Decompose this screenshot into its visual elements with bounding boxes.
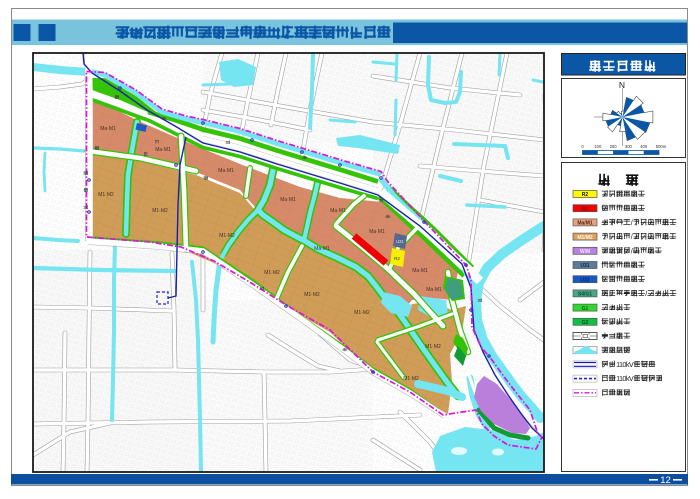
svg-text:G1: G1 [582,306,589,312]
svg-text:M1·M2: M1·M2 [219,233,235,239]
svg-text:Ma·M1: Ma·M1 [155,147,171,153]
svg-text:M1·M2: M1·M2 [403,376,419,382]
svg-text:300: 300 [625,144,633,149]
svg-text:R2: R2 [582,192,589,198]
svg-text:M1·M2: M1·M2 [304,292,320,298]
svg-text:110kV: 110kV [616,374,634,383]
svg-text:Ma·M1: Ma·M1 [426,287,442,293]
svg-text:U31: U31 [396,239,404,244]
svg-text:Ma·M1: Ma·M1 [369,229,385,235]
svg-text:110kV: 110kV [616,360,634,369]
svg-text:U31: U31 [580,263,589,269]
svg-text:Ma/M1: Ma/M1 [577,221,593,227]
svg-text:S4/G1: S4/G1 [578,292,592,298]
svg-text:U32: U32 [580,277,589,283]
svg-text:M1/M2: M1/M2 [577,235,593,241]
svg-text:M1·M2: M1·M2 [264,270,280,276]
svg-text:G2: G2 [582,320,589,326]
svg-text:400: 400 [640,144,648,149]
svg-text:R2: R2 [394,256,400,261]
svg-text:Ma·M1: Ma·M1 [218,168,234,174]
svg-text:200: 200 [610,144,618,149]
svg-text:M1·M2: M1·M2 [98,192,114,198]
svg-text:Ma·M1: Ma·M1 [330,208,346,214]
svg-text:Ma·M1: Ma·M1 [280,197,296,203]
svg-text:Ma·M1: Ma·M1 [314,246,330,252]
svg-text:M1·M2: M1·M2 [425,344,441,350]
svg-text:B1: B1 [582,206,589,212]
svg-text:W/M: W/M [580,249,590,255]
svg-text:N: N [619,80,625,90]
svg-text:M1·M2: M1·M2 [152,208,168,214]
svg-text:M1·M2: M1·M2 [354,310,370,316]
svg-text:12: 12 [660,475,671,486]
svg-text:Ma·M1: Ma·M1 [412,268,428,274]
svg-text:100: 100 [594,144,602,149]
svg-text:500m: 500m [656,144,667,149]
svg-text:Ma·M1: Ma·M1 [100,126,116,132]
